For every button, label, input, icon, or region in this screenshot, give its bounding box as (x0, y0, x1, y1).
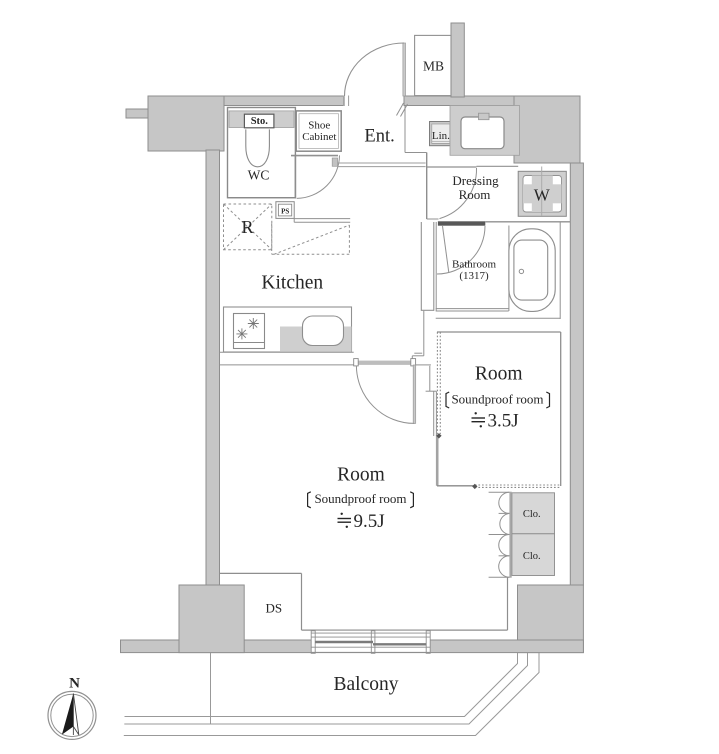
svg-text:N: N (69, 676, 80, 692)
svg-text:Clo.: Clo. (523, 551, 541, 562)
svg-text:PS: PS (281, 207, 289, 215)
svg-text:9.5J: 9.5J (354, 511, 385, 532)
svg-text:Shoe: Shoe (308, 120, 330, 132)
svg-text:Soundproof room: Soundproof room (314, 491, 406, 506)
svg-text:(1317): (1317) (459, 270, 489, 282)
svg-text:3.5J: 3.5J (488, 411, 519, 432)
svg-text:Room: Room (337, 465, 385, 486)
svg-text:Lin.: Lin. (432, 130, 450, 142)
svg-text:Clo.: Clo. (523, 509, 541, 520)
svg-text:MB: MB (423, 59, 444, 74)
svg-text:Room: Room (459, 187, 491, 202)
svg-text:Cabinet: Cabinet (302, 131, 336, 143)
svg-text:Balcony: Balcony (334, 674, 399, 695)
svg-text:Dressing: Dressing (452, 173, 499, 188)
svg-text:Bathroom: Bathroom (452, 258, 496, 270)
svg-text:Soundproof room: Soundproof room (451, 391, 543, 406)
svg-text:Sto.: Sto. (251, 116, 269, 127)
svg-text:Ent.: Ent. (364, 126, 394, 146)
svg-text:R: R (241, 217, 253, 237)
svg-text:W: W (534, 186, 551, 205)
svg-text:Kitchen: Kitchen (261, 272, 323, 293)
svg-text:WC: WC (248, 168, 270, 183)
svg-text:Room: Room (475, 364, 523, 385)
svg-text:DS: DS (265, 601, 282, 616)
